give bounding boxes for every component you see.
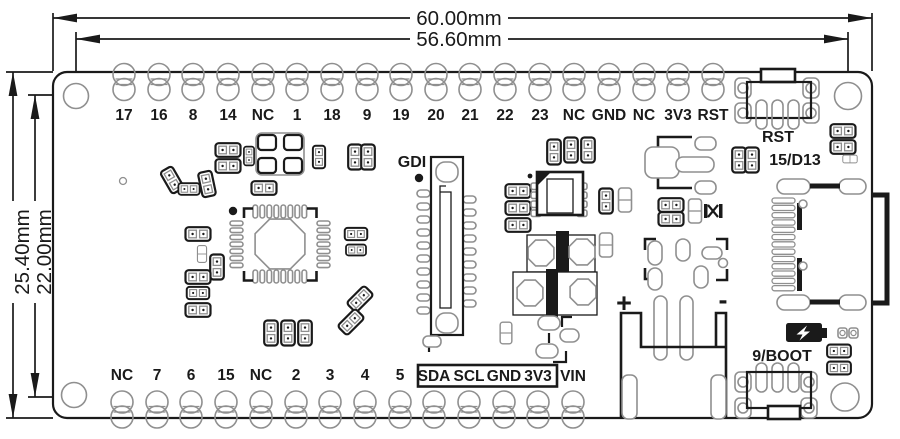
dim-width-inner: 56.60mm	[416, 28, 501, 51]
pin-label: VIN	[560, 368, 586, 385]
crystal-pad	[284, 135, 302, 150]
regulator-pad	[695, 137, 716, 150]
inductor-pad	[517, 280, 543, 306]
pin-label: 19	[392, 107, 410, 124]
passive-component	[599, 189, 613, 214]
pcb-dimension-drawing: 60.00mm 56.60mm 25.40mm 22.00mm	[0, 0, 900, 439]
pin-label: 7	[153, 367, 162, 384]
passive-component	[831, 124, 856, 138]
inductor-pad	[570, 279, 596, 305]
passive-component	[500, 322, 512, 344]
passive-component	[187, 287, 210, 299]
pin-label: 20	[427, 107, 444, 124]
pin-label: 4	[361, 367, 370, 384]
passive-component	[745, 148, 759, 173]
inductor-pad	[569, 239, 595, 265]
pin-label: NC	[111, 367, 133, 384]
pin-label: 1	[293, 107, 302, 124]
passive-component	[506, 201, 531, 215]
passive-component	[659, 212, 684, 226]
passive-component	[506, 184, 531, 198]
passive-component	[216, 159, 241, 173]
passive-component	[346, 245, 366, 256]
pin-label: GND	[592, 107, 626, 124]
flash-body	[547, 179, 573, 213]
pin-label: GND	[487, 368, 521, 385]
passive-component	[827, 362, 851, 375]
pin-label: 21	[461, 107, 479, 124]
passive-component	[564, 138, 578, 163]
battery-slot	[654, 296, 667, 360]
passive-component	[210, 255, 224, 280]
passive-component	[689, 199, 702, 223]
pin-label: 3	[326, 367, 335, 384]
arrowhead-icon	[31, 373, 40, 397]
pin-label: NC	[252, 107, 274, 124]
passive-component	[506, 218, 531, 232]
pin-label: NC	[563, 107, 585, 124]
pin1-dot-icon	[528, 174, 533, 179]
arrowhead-icon	[53, 14, 77, 23]
battery-pad	[622, 375, 637, 419]
pin-label: 16	[150, 107, 168, 124]
regulator-tab	[676, 157, 714, 172]
arrowhead-icon	[31, 95, 40, 119]
pin1-dot-icon	[415, 174, 423, 182]
button-actuator	[761, 69, 795, 82]
passive-component	[197, 246, 206, 263]
gdi-label: GDI	[398, 154, 426, 171]
regulator-pad	[695, 181, 716, 194]
pin-label: 18	[323, 107, 341, 124]
inductor-core	[546, 269, 558, 317]
pin-label: 17	[115, 107, 132, 124]
pin-label: NC	[250, 367, 272, 384]
regulator-body	[645, 147, 679, 178]
pin-label: SDA	[418, 368, 451, 385]
d13-label: 15/D13	[769, 152, 821, 169]
arrowhead-icon	[9, 72, 18, 96]
arrowhead-icon	[824, 35, 848, 44]
inductor-pad	[528, 240, 554, 266]
pin-label: 5	[396, 367, 405, 384]
flash-chip	[528, 172, 587, 217]
arrowhead-icon	[848, 14, 872, 23]
passive-component	[538, 316, 560, 330]
passive-component	[186, 270, 211, 284]
pin-label: 14	[219, 107, 237, 124]
dim-height-outer: 25.40mm	[11, 209, 34, 294]
crystal-pad	[258, 158, 276, 173]
passive-component	[216, 143, 241, 157]
passive-component	[536, 344, 558, 358]
reset-button-label: RST	[762, 129, 794, 146]
passive-component	[186, 227, 211, 241]
passive-component	[732, 148, 746, 173]
passive-component	[313, 146, 325, 169]
pin-label: 9	[363, 107, 372, 124]
arrowhead-icon	[76, 35, 100, 44]
pin-label: 15	[217, 367, 235, 384]
crystal-oscillator	[256, 133, 304, 175]
passive-component	[361, 145, 375, 170]
pin-label: 3V3	[524, 368, 552, 385]
mcu-die	[255, 219, 305, 269]
pin-label: 8	[189, 107, 198, 124]
usb-shell	[872, 195, 887, 303]
passive-component	[252, 181, 277, 195]
passive-component	[178, 183, 199, 195]
crystal-pad	[258, 135, 276, 150]
dim-width-outer: 60.00mm	[416, 7, 501, 30]
boot-button	[735, 363, 817, 419]
pin-label: 23	[531, 107, 549, 124]
passive-component	[423, 336, 441, 347]
battery-pad	[711, 375, 726, 419]
pin-label: 3V3	[664, 107, 692, 124]
crystal-pad	[284, 158, 302, 173]
pin-label: RST	[698, 107, 730, 124]
arrowhead-icon	[9, 394, 18, 418]
pin-label: NC	[633, 107, 655, 124]
passive-component	[345, 228, 368, 240]
passive-component	[843, 155, 857, 163]
pin-label: 2	[292, 367, 301, 384]
passive-component	[348, 145, 362, 170]
pin-label: 6	[187, 367, 196, 384]
passive-component	[831, 140, 856, 154]
passive-component	[264, 321, 278, 346]
button-actuator	[768, 406, 800, 419]
passive-component	[244, 147, 254, 166]
passive-component	[547, 140, 561, 165]
battery-charging-icon	[786, 323, 827, 342]
passive-component	[560, 329, 579, 342]
passive-component	[659, 198, 684, 212]
drawing-canvas: 60.00mm 56.60mm 25.40mm 22.00mm	[0, 0, 900, 439]
passive-component	[600, 233, 613, 257]
pin-label: 22	[496, 107, 513, 124]
pin1-dot-icon	[229, 207, 237, 215]
passive-component	[827, 345, 851, 358]
passive-component	[619, 188, 632, 212]
battery-minus-label: -	[719, 285, 728, 315]
battery-slot	[680, 296, 693, 360]
passive-component	[186, 303, 211, 317]
passive-component	[298, 321, 312, 346]
passive-component	[581, 138, 595, 163]
pin-label: SCL	[454, 368, 485, 385]
passive-component	[281, 321, 295, 346]
